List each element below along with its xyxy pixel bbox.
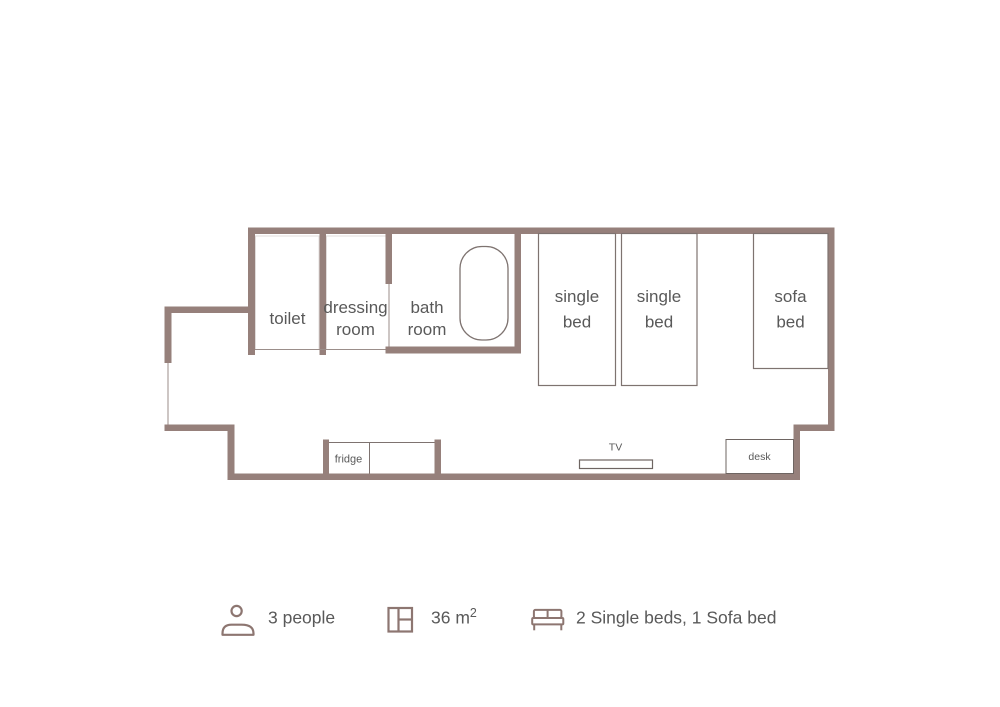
svg-text:bed: bed (645, 313, 673, 332)
svg-text:bed: bed (563, 313, 591, 332)
svg-text:room: room (408, 320, 447, 339)
svg-text:bath: bath (410, 298, 443, 317)
svg-text:bed: bed (776, 313, 804, 332)
svg-text:dressing: dressing (323, 298, 387, 317)
svg-text:single: single (555, 287, 599, 306)
svg-text:single: single (637, 287, 681, 306)
svg-text:2 Single beds, 1 Sofa bed: 2 Single beds, 1 Sofa bed (576, 608, 776, 628)
svg-text:fridge: fridge (335, 454, 363, 466)
svg-text:toilet: toilet (270, 309, 306, 328)
svg-text:sofa: sofa (774, 287, 807, 306)
svg-text:desk: desk (748, 451, 771, 463)
svg-text:3 people: 3 people (268, 608, 335, 628)
svg-text:TV: TV (609, 442, 622, 454)
svg-text:room: room (336, 320, 375, 339)
